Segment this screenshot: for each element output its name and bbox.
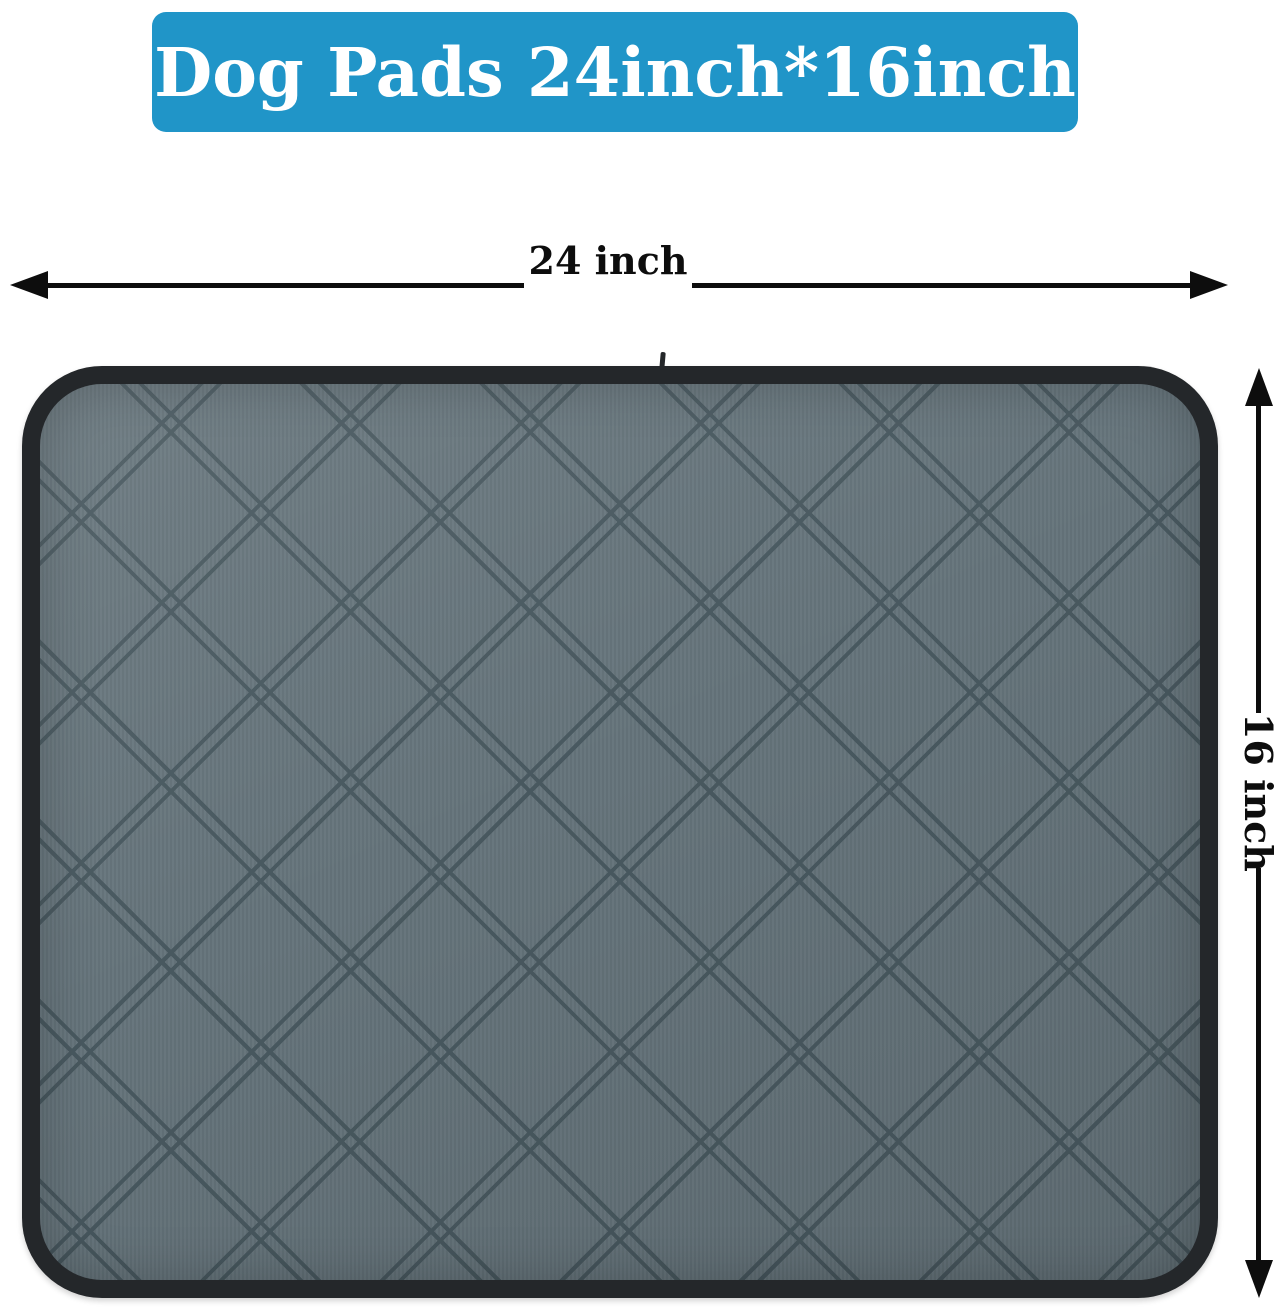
title-banner: Dog Pads 24inch*16inch xyxy=(152,12,1078,132)
arrow-down-icon xyxy=(1245,1260,1273,1298)
quilted-fabric-surface xyxy=(40,384,1200,1280)
arrow-right-icon xyxy=(1190,271,1228,299)
height-dimension-label: 16 inch xyxy=(1231,713,1282,869)
height-dimension-line-top xyxy=(1256,402,1261,713)
height-dimension-line-bottom xyxy=(1256,868,1261,1262)
arrow-up-icon xyxy=(1245,368,1273,406)
banner-title: Dog Pads 24inch*16inch xyxy=(154,33,1076,112)
width-dimension-line-right xyxy=(692,283,1192,288)
width-dimension-label: 24 inch xyxy=(524,237,692,285)
dog-pad xyxy=(22,366,1218,1298)
product-image: Dog Pads 24inch*16inch 24 inch 16 inch xyxy=(0,0,1282,1313)
width-dimension-line-left xyxy=(40,283,524,288)
